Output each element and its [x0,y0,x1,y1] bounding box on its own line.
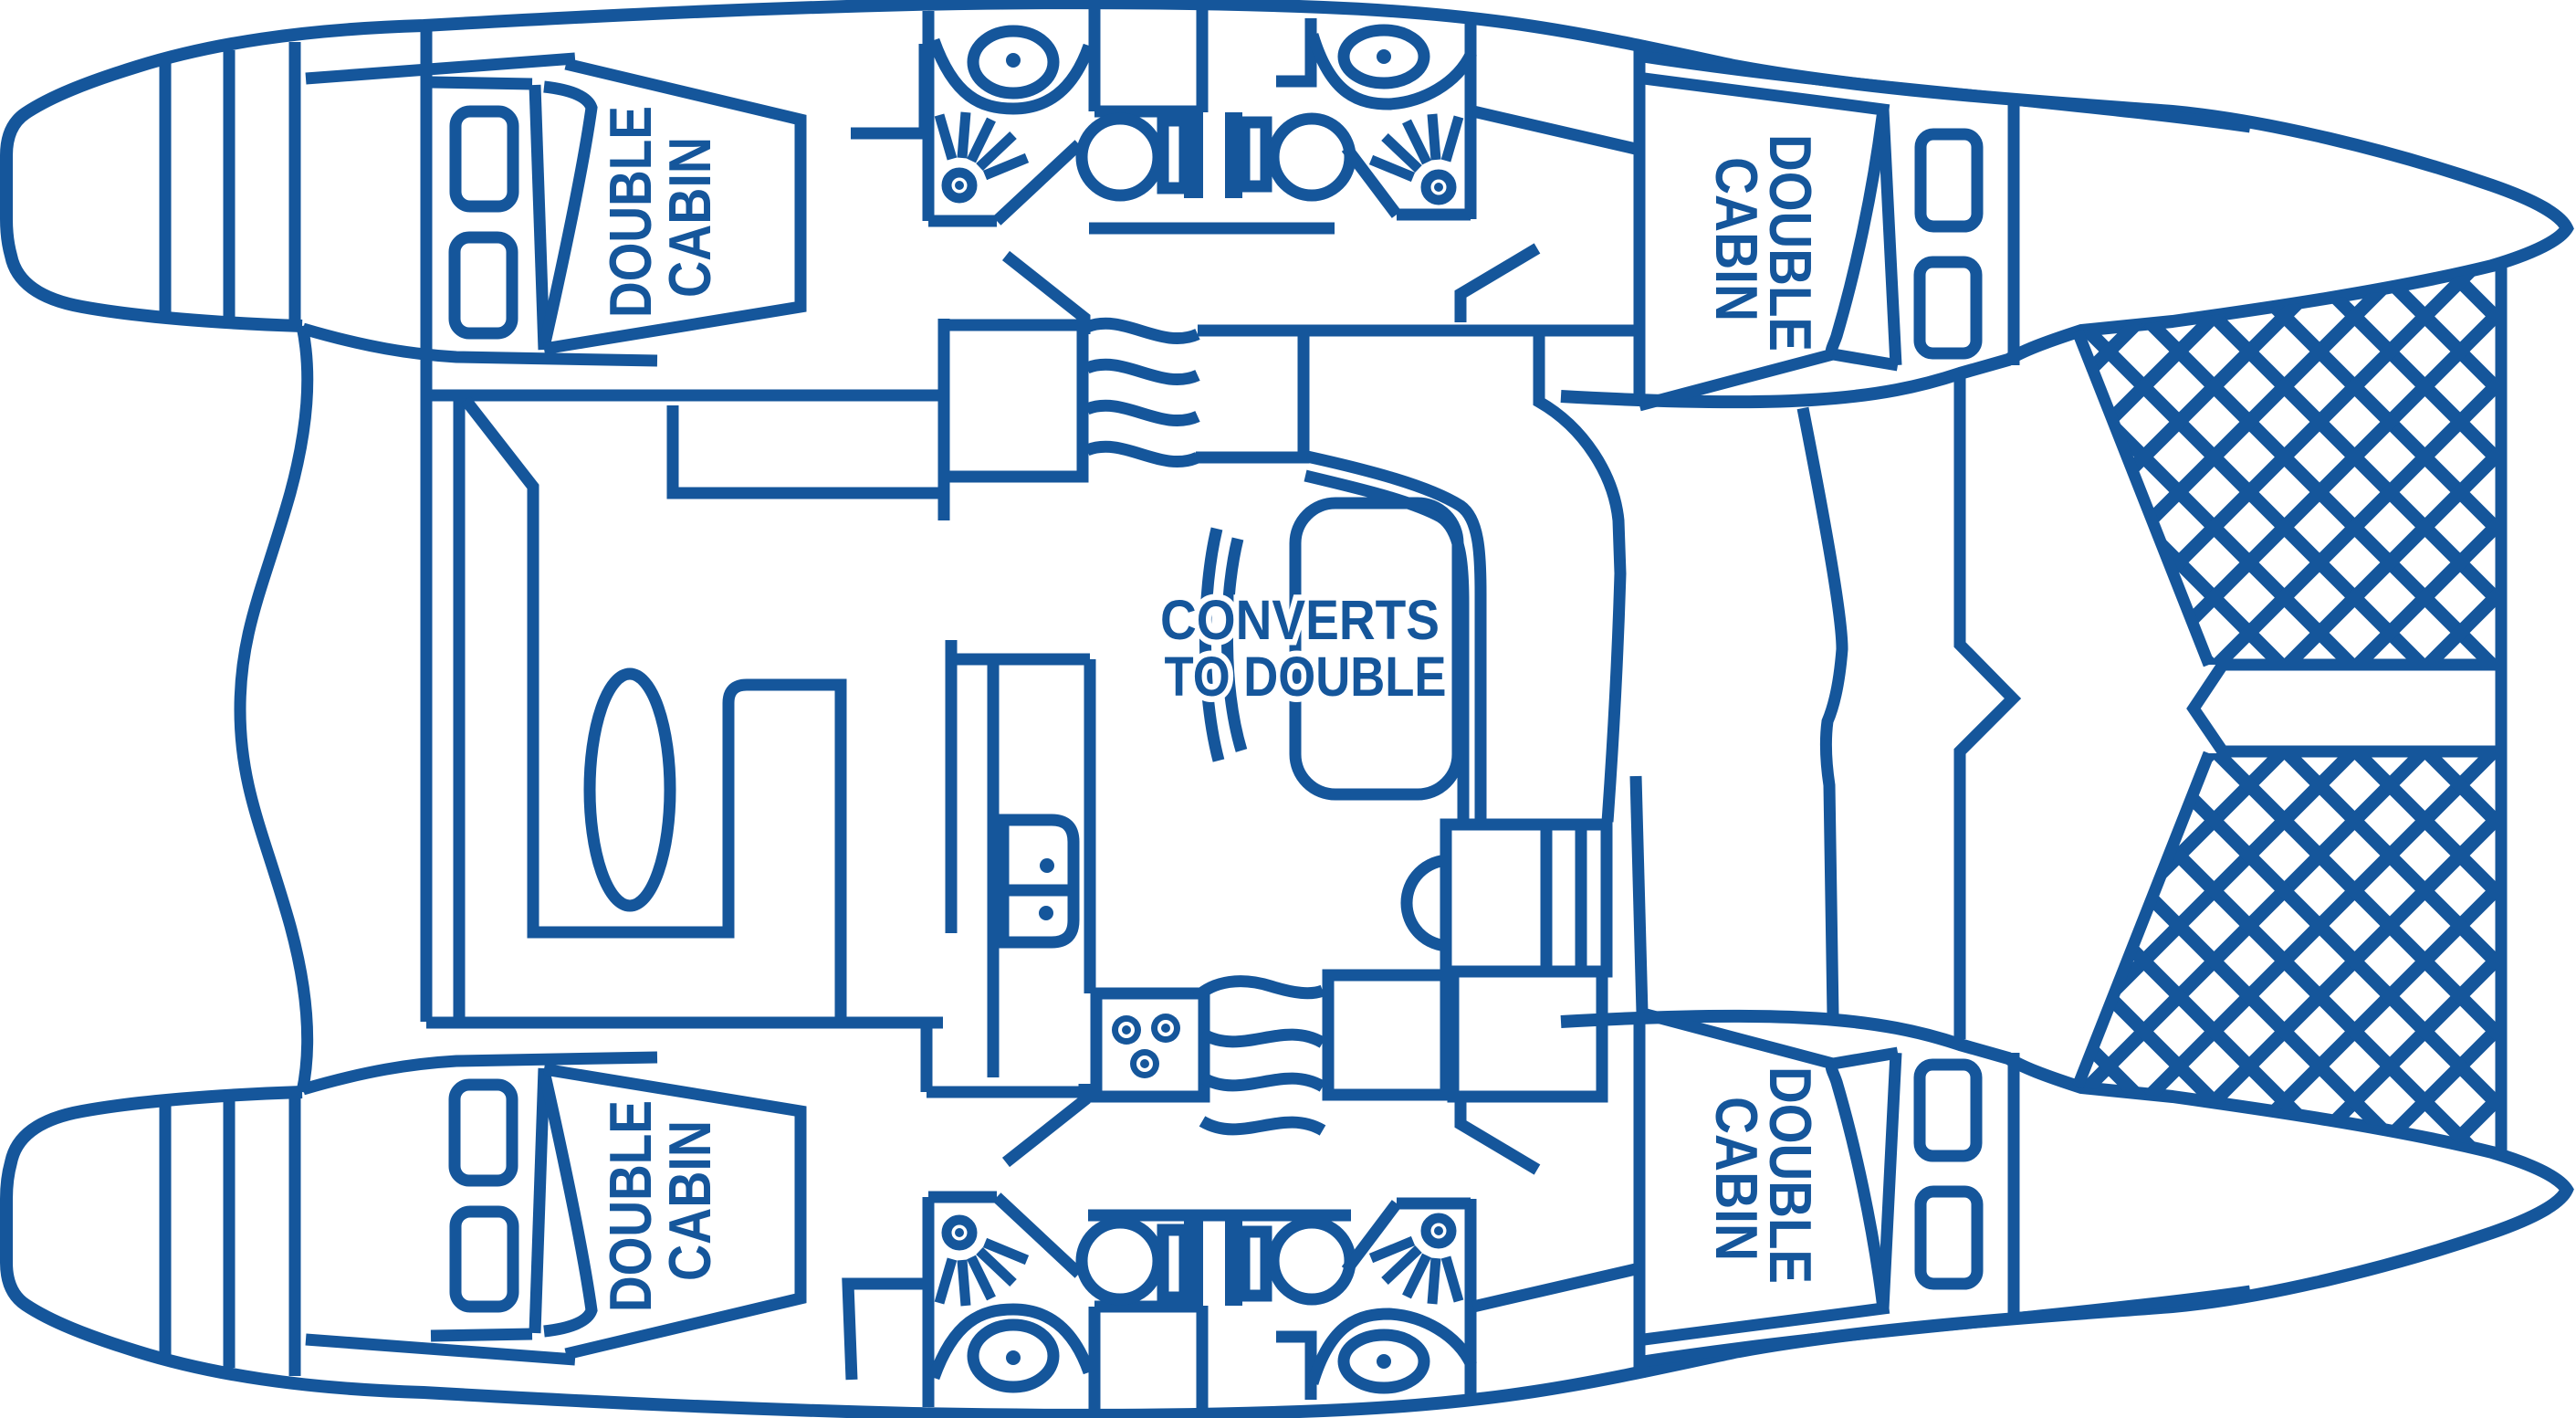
svg-text:CABIN: CABIN [1703,157,1770,321]
svg-text:CABIN: CABIN [656,1120,723,1281]
svg-text:CABIN: CABIN [656,137,723,298]
svg-text:DOUBLE: DOUBLE [597,106,664,318]
svg-text:CONVERTS: CONVERTS [1160,589,1440,651]
svg-text:TO DOUBLE: TO DOUBLE [1165,646,1447,708]
svg-text:CABIN: CABIN [1703,1097,1770,1261]
svg-text:DOUBLE: DOUBLE [597,1100,664,1312]
